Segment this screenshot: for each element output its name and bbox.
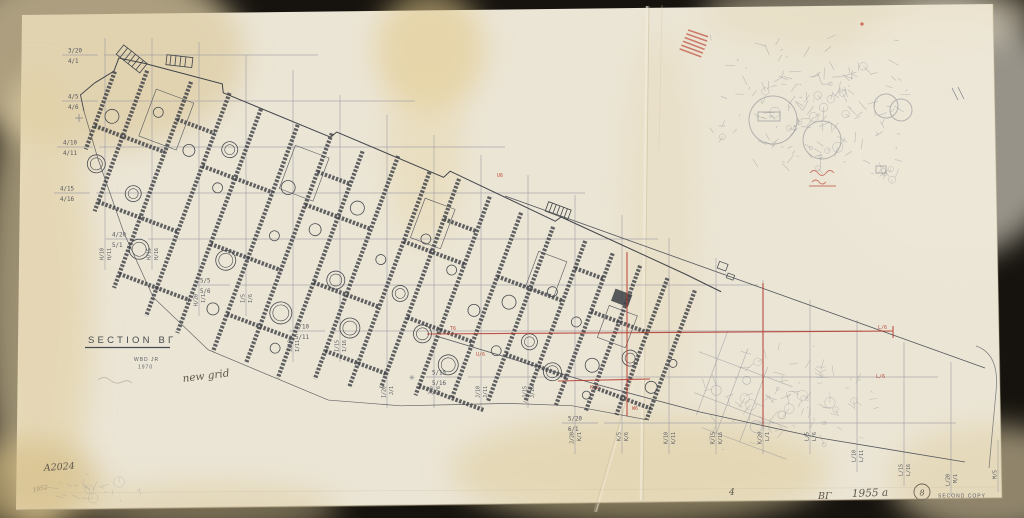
grid-label-vertical: M/5	[993, 470, 999, 479]
grid-label-horizontal: 4/16	[60, 197, 74, 203]
grid-label-vertical: K/1	[577, 432, 583, 441]
scanned-document: T6U/6U6L/6L/6K/2W6 3/204/14/54/64/104/11…	[0, 0, 1024, 518]
grid-label-vertical: J/11	[483, 386, 489, 398]
red-grid-label: U/6	[476, 352, 485, 358]
red-grid-label: L/6	[878, 325, 887, 331]
catalog-number: A2024	[42, 461, 75, 474]
grid-label-vertical: L/11	[859, 450, 865, 462]
grid-label-horizontal: 5/5	[200, 279, 211, 285]
grid-label-vertical: I/6	[248, 294, 254, 303]
red-grid-label: L/6	[876, 374, 885, 380]
grid-label-vertical: L/1	[765, 432, 771, 441]
check-mark: 4	[728, 488, 735, 498]
grid-label-horizontal: 4/20	[112, 233, 126, 239]
grid-label-vertical: L/6	[812, 432, 818, 441]
grid-label-horizontal: 5/10	[295, 325, 309, 331]
grid-label-vertical: L/20	[946, 474, 952, 486]
grid-label-horizontal: 3/20	[68, 49, 82, 55]
grid-label-horizontal: 5/15	[432, 371, 446, 377]
footer-number: 1955 a	[852, 487, 889, 500]
grid-label-horizontal: 4/5	[68, 95, 79, 101]
site-plan-scan: T6U/6U6L/6L/6K/2W6 3/204/14/54/64/104/11…	[0, 0, 1024, 518]
grid-label-vertical: I/20	[382, 386, 388, 398]
grid-label-horizontal: 5/1	[112, 243, 123, 249]
survey-year: 1970	[138, 365, 153, 371]
red-dot	[860, 22, 863, 25]
grid-label-vertical: K/11	[671, 432, 677, 444]
grid-label-vertical: I/15	[335, 340, 341, 352]
grid-label-vertical: J/20	[570, 432, 576, 444]
surveyor-initials: WBD JR	[134, 357, 159, 363]
grid-label-vertical: L/10	[852, 450, 858, 462]
grid-label-vertical: H/16	[154, 248, 160, 260]
grid-label-vertical: K/15	[711, 432, 717, 444]
grid-label-vertical: I/5	[241, 294, 247, 303]
grid-label-vertical: M/1	[953, 474, 959, 483]
grid-label-vertical: J/10	[476, 386, 482, 398]
red-grid-label: K/2	[590, 385, 599, 391]
grid-label-vertical: K/5	[617, 432, 623, 441]
grid-label-vertical: H/20	[194, 294, 200, 306]
grid-label-vertical: L/16	[906, 464, 912, 476]
grid-label-vertical: I/10	[288, 340, 294, 352]
red-grid-label: T6	[450, 326, 456, 332]
grid-label-vertical: J/5	[429, 386, 435, 395]
grid-label-vertical: H/10	[100, 248, 106, 260]
grid-label-horizontal: 4/6	[68, 105, 79, 111]
grid-label-horizontal: 4/11	[63, 151, 77, 157]
grid-label-vertical: I/16	[342, 340, 348, 352]
grid-label-vertical: K/10	[664, 432, 670, 444]
grid-label-horizontal: 5/20	[568, 417, 582, 423]
grid-label-vertical: J/6	[436, 386, 442, 395]
grid-label-vertical: I/1	[201, 294, 207, 303]
red-grid-label: U6	[497, 173, 503, 179]
grid-label-vertical: L/5	[805, 432, 811, 441]
grid-label-vertical: J/15	[523, 386, 529, 398]
grid-label-vertical: J/1	[389, 386, 395, 395]
grid-label-horizontal: 4/1	[68, 59, 79, 65]
page-title: SECTION ΒΓ	[88, 335, 176, 346]
grid-label-vertical: H/11	[107, 248, 113, 260]
grid-label-vertical: H/15	[147, 248, 153, 260]
red-grid-label: W6	[632, 406, 638, 412]
grid-label-vertical: K/6	[624, 432, 630, 441]
grid-label-vertical: L/15	[899, 464, 905, 476]
grid-label-vertical: K/20	[758, 432, 764, 444]
asterisk-mark: ✳	[409, 374, 415, 382]
grid-label-horizontal: 4/10	[63, 141, 77, 147]
circled-number: 8	[919, 489, 924, 498]
grid-label-vertical: J/16	[530, 386, 536, 398]
grid-label-vertical: K/16	[718, 432, 724, 444]
grid-label-vertical: I/11	[295, 340, 301, 352]
grid-label-horizontal: 4/15	[60, 187, 74, 193]
